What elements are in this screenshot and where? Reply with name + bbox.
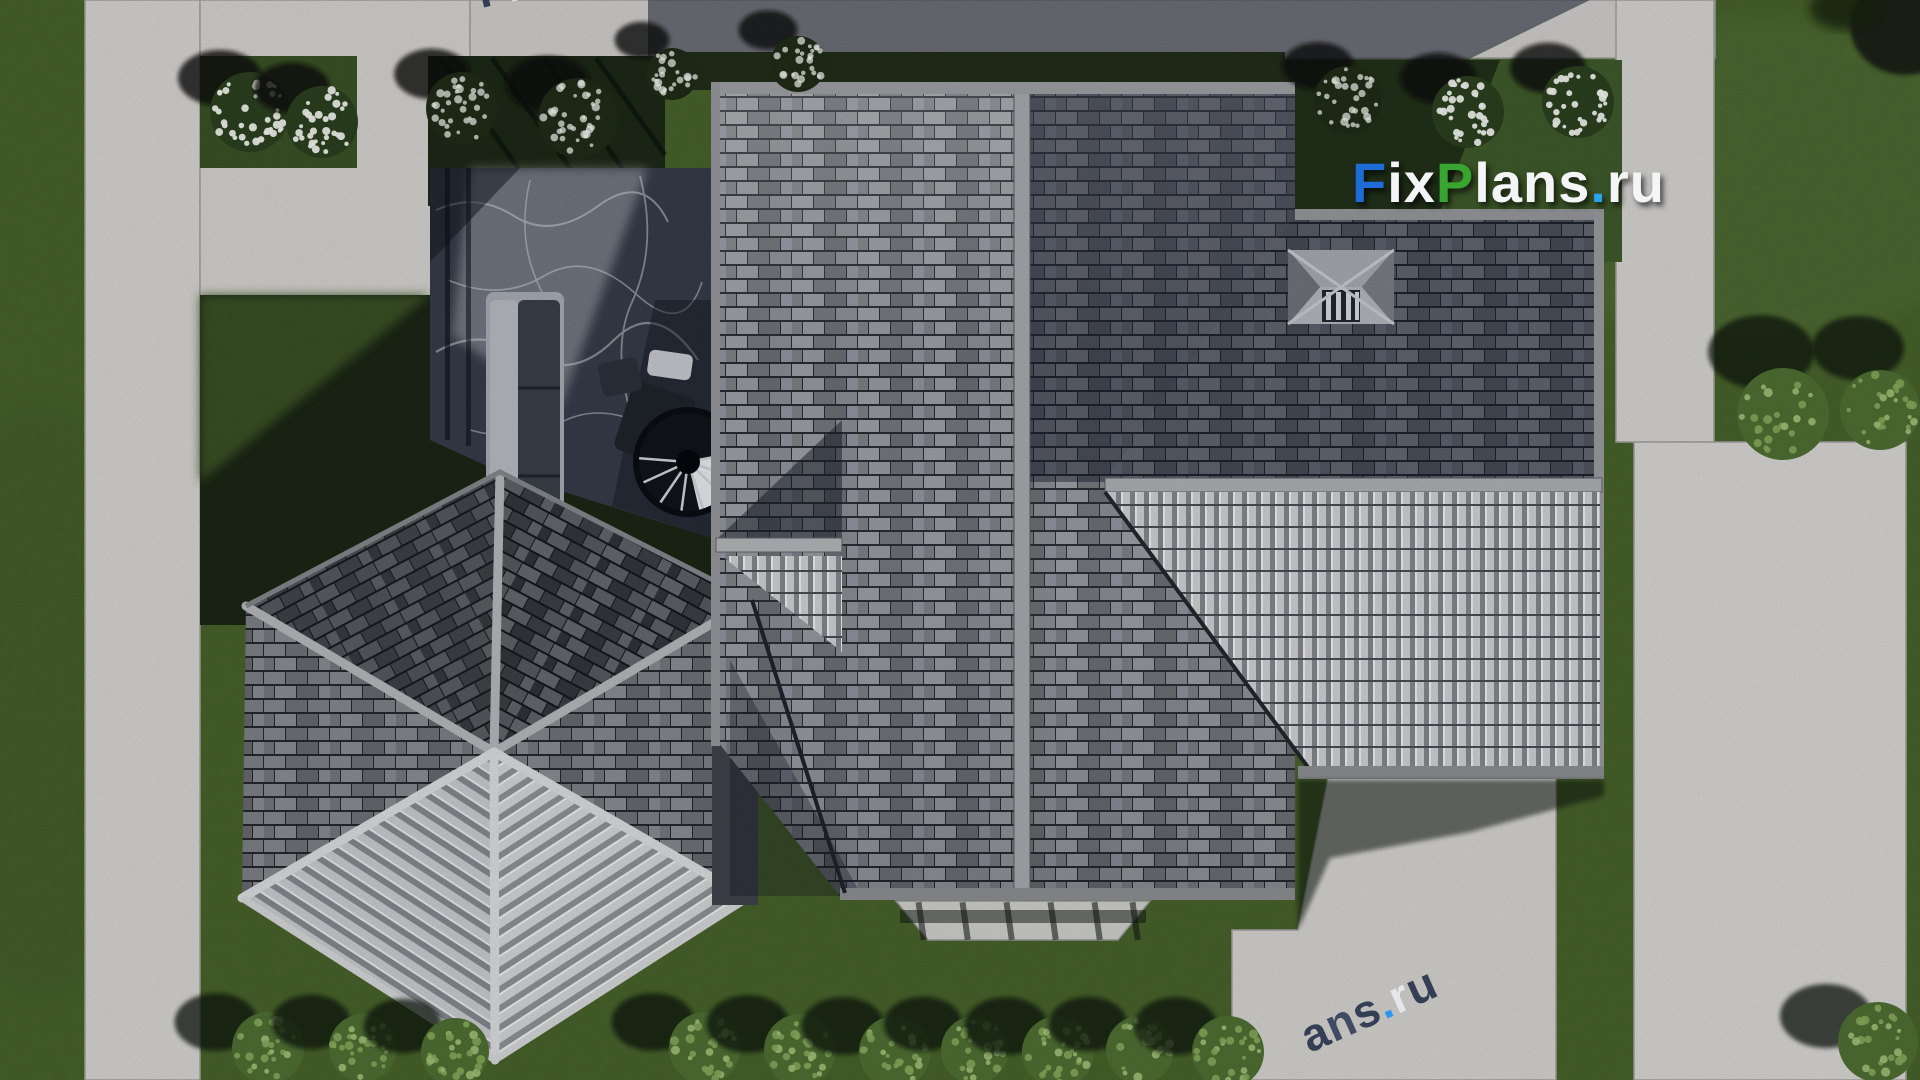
aerial-render-canvas: FixPlans.ru FixPlans.ru ans.ru xyxy=(0,0,1920,1080)
watermark-letter: F xyxy=(1352,151,1387,214)
watermark-letter: ix xyxy=(1387,151,1436,214)
watermark-letter: P xyxy=(1436,151,1474,214)
watermark-letter: ru xyxy=(1607,151,1665,214)
watermark-letter: lans xyxy=(1474,151,1590,214)
fixplans-watermark: FixPlans.ru xyxy=(1352,150,1665,215)
watermark-letter: . xyxy=(1590,151,1607,214)
